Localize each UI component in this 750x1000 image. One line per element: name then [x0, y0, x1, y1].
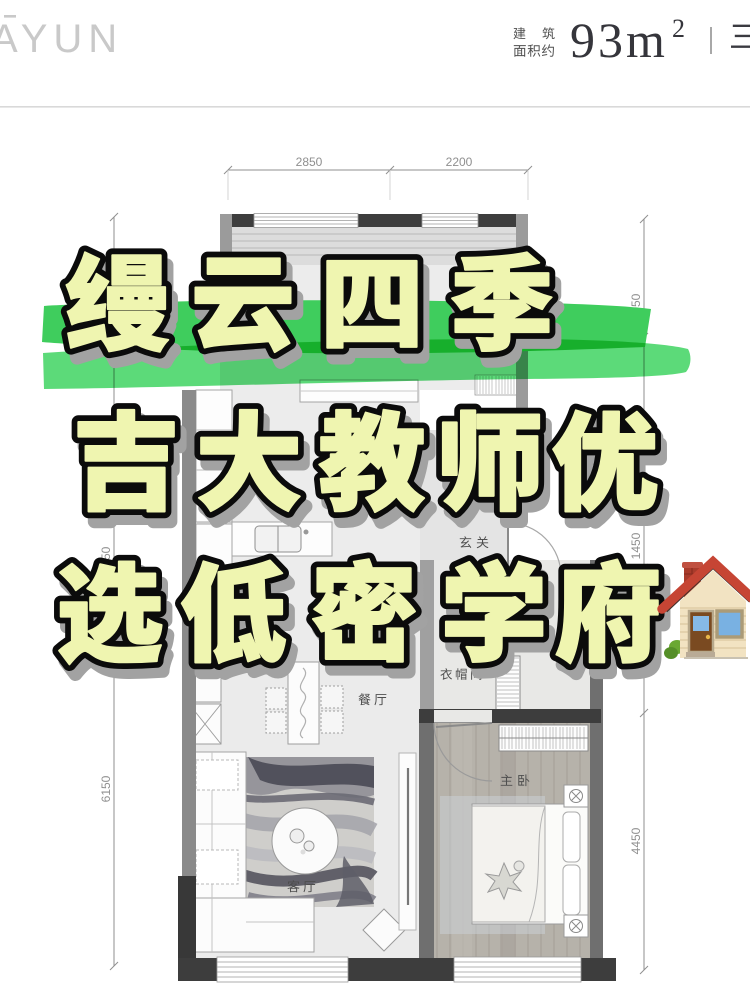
svg-text:4450: 4450: [629, 827, 643, 854]
svg-text:2850: 2850: [296, 155, 323, 169]
svg-text:2200: 2200: [446, 155, 473, 169]
svg-text:2: 2: [672, 14, 685, 43]
svg-text:1450: 1450: [629, 532, 643, 559]
svg-text:6150: 6150: [99, 775, 113, 802]
svg-text:AYUN: AYUN: [0, 17, 123, 61]
svg-text:93m: 93m: [570, 12, 668, 68]
